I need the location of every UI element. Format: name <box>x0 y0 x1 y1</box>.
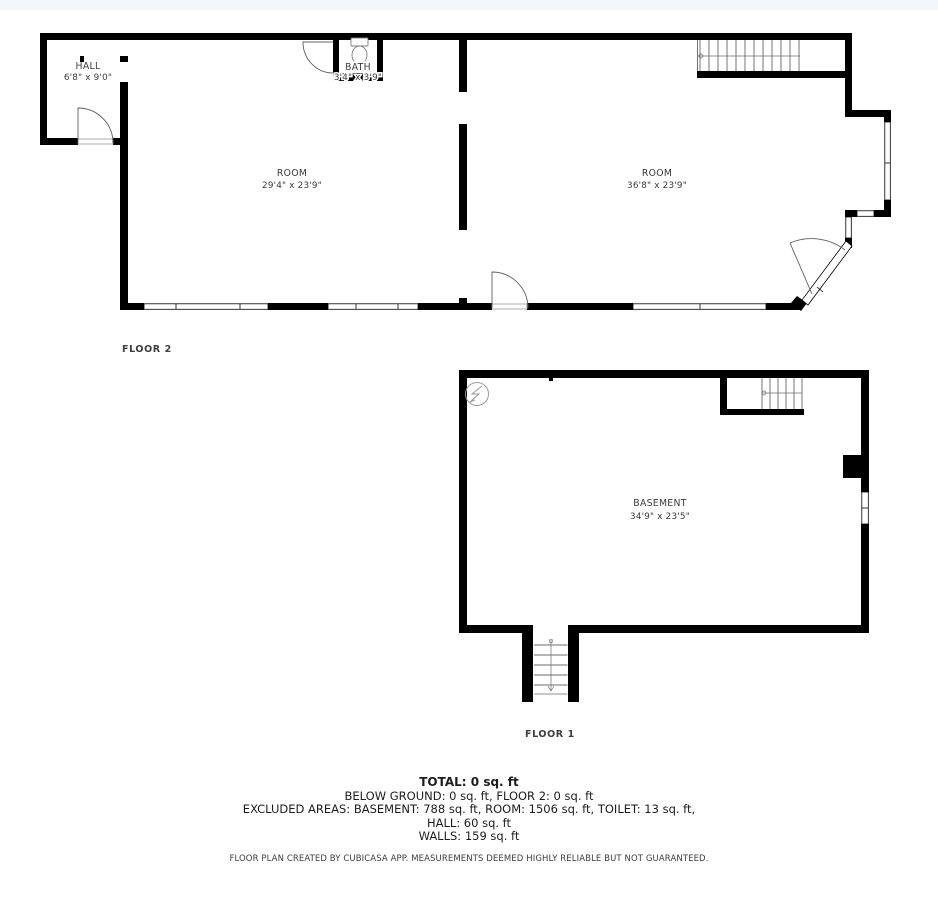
chimney-block <box>843 455 869 478</box>
summary-line-below-ground: BELOW GROUND: 0 sq. ft, FLOOR 2: 0 sq. f… <box>0 790 938 804</box>
summary-line-excluded: EXCLUDED AREAS: BASEMENT: 788 sq. ft, RO… <box>0 803 938 817</box>
floor2-windows <box>144 122 890 309</box>
room-left-dims: 29'4" x 23'9" <box>262 181 322 191</box>
door-swing-icon <box>303 42 333 73</box>
room-left-label: ROOM <box>277 168 307 179</box>
bath-dims: 3'4" x 3'9" <box>334 73 382 83</box>
floor1-windows <box>862 492 869 524</box>
floor2-walls <box>40 33 891 311</box>
floorplan-canvas: HALL 6'8" x 9'0" BATH 3'4" x 3'9" ROOM 2… <box>0 0 938 760</box>
door-swing-icon <box>790 239 845 250</box>
area-summary: TOTAL: 0 sq. ft BELOW GROUND: 0 sq. ft, … <box>0 776 938 866</box>
floor2-plan: HALL 6'8" x 9'0" BATH 3'4" x 3'9" ROOM 2… <box>40 33 891 355</box>
floor1-walls <box>459 370 869 702</box>
floor2-caption: FLOOR 2 <box>122 344 172 355</box>
floor2-stairs-icon <box>698 40 801 71</box>
floorplan-page: HALL 6'8" x 9'0" BATH 3'4" x 3'9" ROOM 2… <box>0 0 938 902</box>
door-swing-icon <box>78 108 113 143</box>
summary-total: TOTAL: 0 sq. ft <box>0 776 938 790</box>
basement-dims: 34'9" x 23'5" <box>630 512 690 522</box>
room-right-dims: 36'8" x 23'9" <box>627 181 687 191</box>
basement-lower-stairs-icon <box>534 639 568 694</box>
disclaimer-text: FLOOR PLAN CREATED BY CUBICASA APP. MEAS… <box>0 853 938 867</box>
door-swing-icon <box>492 272 528 308</box>
room-right-label: ROOM <box>642 168 672 179</box>
summary-line-hall: HALL: 60 sq. ft <box>0 817 938 831</box>
floor1-caption: FLOOR 1 <box>525 729 575 740</box>
toilet-icon <box>351 38 368 64</box>
bath-label: BATH <box>345 62 371 73</box>
electrical-panel-icon <box>466 383 489 406</box>
basement-label: BASEMENT <box>633 498 686 509</box>
summary-line-walls: WALLS: 159 sq. ft <box>0 830 938 844</box>
hall-dims: 6'8" x 9'0" <box>64 73 112 83</box>
basement-upper-stairs-icon <box>762 378 802 409</box>
hall-label: HALL <box>76 61 101 72</box>
floor1-plan: BASEMENT 34'9" x 23'5" FLOOR 1 <box>459 370 869 740</box>
